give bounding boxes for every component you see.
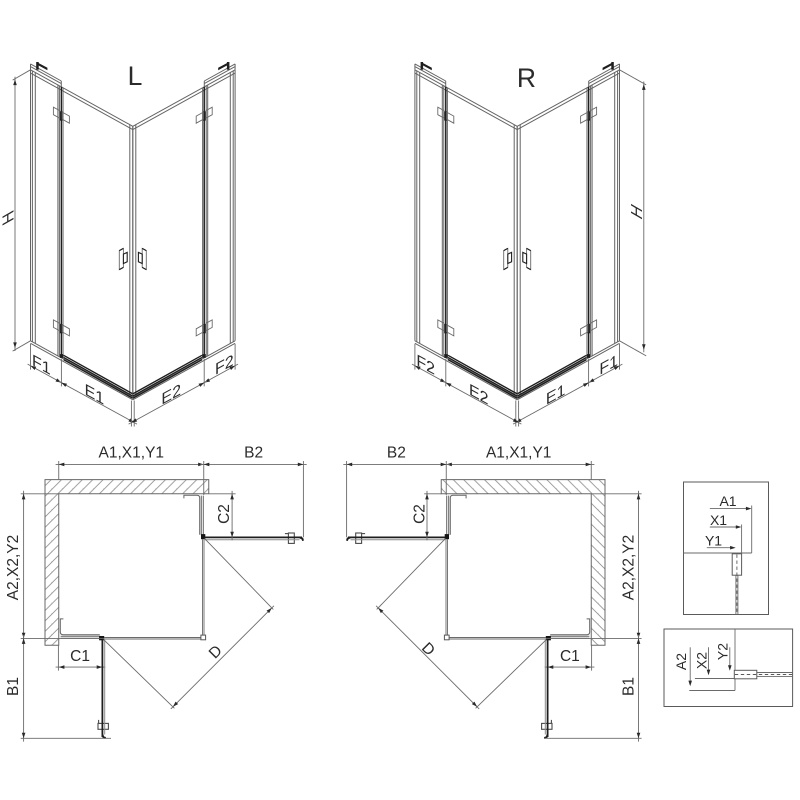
svg-text:L: L: [128, 61, 143, 91]
svg-text:F1: F1: [599, 350, 618, 379]
svg-text:A1,X1,Y1: A1,X1,Y1: [99, 444, 165, 461]
svg-text:R: R: [517, 63, 536, 93]
svg-text:B1: B1: [5, 677, 22, 696]
svg-text:C1: C1: [560, 648, 580, 665]
svg-text:E2: E2: [469, 379, 489, 408]
svg-text:D: D: [206, 642, 226, 662]
svg-text:A1,X1,Y1: A1,X1,Y1: [486, 444, 552, 461]
svg-text:F1: F1: [32, 350, 51, 379]
svg-text:B2: B2: [244, 444, 263, 461]
svg-text:X2: X2: [693, 652, 709, 669]
svg-text:C2: C2: [216, 504, 233, 524]
svg-text:H: H: [627, 200, 646, 222]
svg-text:A2,X2,Y2: A2,X2,Y2: [621, 535, 638, 601]
svg-text:E2: E2: [161, 379, 181, 408]
svg-text:Y2: Y2: [715, 643, 731, 660]
svg-text:A1: A1: [719, 493, 736, 509]
svg-text:A2: A2: [673, 653, 689, 670]
svg-text:D: D: [418, 639, 438, 659]
svg-text:C1: C1: [70, 648, 90, 665]
svg-text:B1: B1: [621, 677, 638, 696]
svg-text:X1: X1: [710, 512, 727, 528]
svg-text:F2: F2: [215, 350, 234, 379]
svg-text:C2: C2: [412, 504, 429, 524]
svg-text:E1: E1: [85, 379, 105, 408]
svg-text:F2: F2: [416, 350, 435, 379]
svg-text:E1: E1: [546, 379, 566, 408]
svg-text:Y1: Y1: [705, 533, 722, 549]
svg-text:A2,X2,Y2: A2,X2,Y2: [5, 535, 22, 601]
svg-text:H: H: [0, 207, 17, 229]
svg-text:B2: B2: [387, 444, 406, 461]
